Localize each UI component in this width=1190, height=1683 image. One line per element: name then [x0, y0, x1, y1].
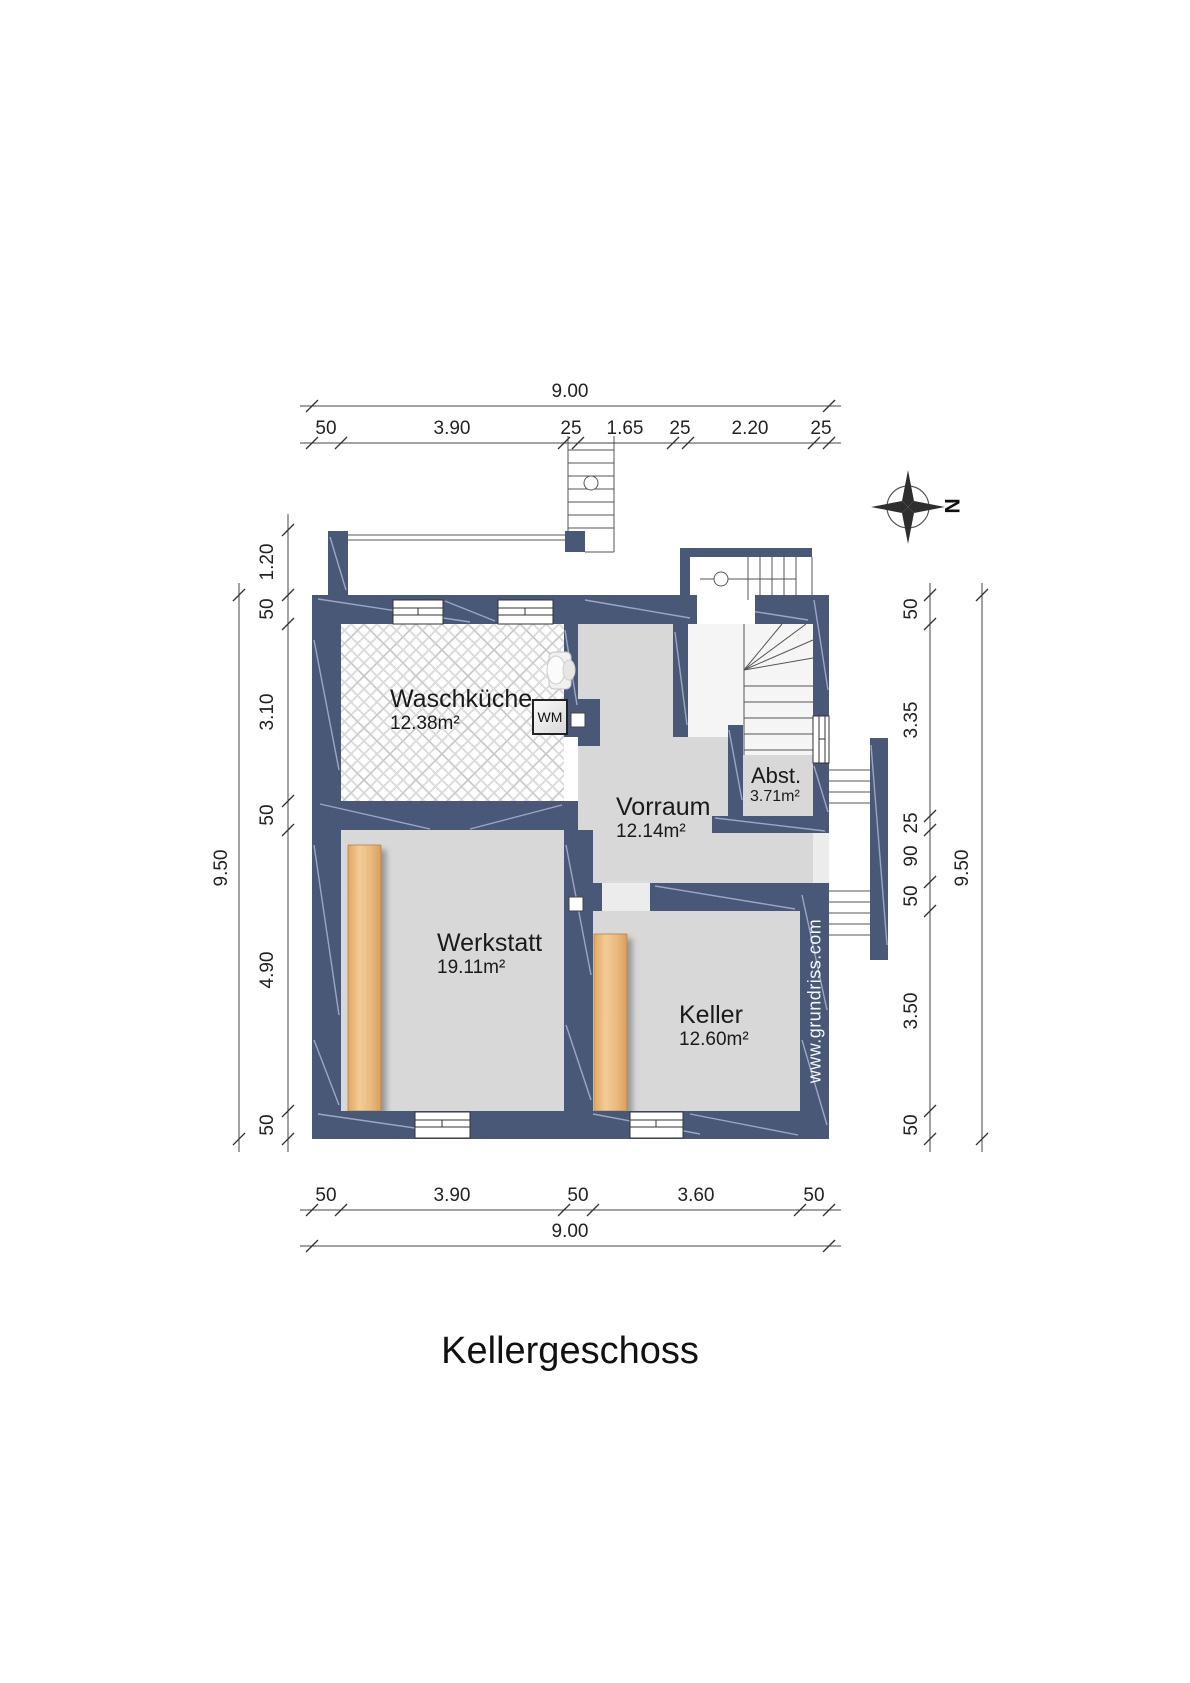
dim-left-chain-4: 4.90 [257, 952, 279, 989]
dim-top-chain-0: 50 [315, 418, 336, 440]
door-panel-werkstatt [569, 897, 583, 911]
wall-west [312, 595, 341, 1139]
dim-left-total: 9.50 [211, 850, 233, 887]
washing-machine-icon: WM [532, 699, 568, 735]
entry-stair-top-right [700, 557, 812, 600]
wall-werkstatt-keller [564, 830, 593, 1111]
room-area-keller: 12.60m² [679, 1029, 749, 1051]
dim-bottom-chain-3: 3.60 [678, 1185, 715, 1207]
dim-bottom-chain-0: 50 [315, 1185, 336, 1207]
dim-top-chain-3: 1.65 [607, 418, 644, 440]
compass-north-label: N [939, 498, 963, 513]
floorplan-page: Waschküche 12.38m² Vorraum 12.14m² Abst.… [0, 0, 1190, 1683]
floorplan-drawing [0, 0, 1190, 1683]
room-label-keller: Keller [679, 1001, 743, 1030]
watermark: www.grundriss.com [805, 894, 827, 1109]
sink-icon [547, 652, 575, 689]
porch-pier [680, 548, 690, 600]
dim-top-chain-6: 25 [810, 418, 831, 440]
werkstatt-workbench [348, 845, 381, 1111]
room-label-werkstatt: Werkstatt [437, 929, 542, 958]
dim-bottom-chain-1: 3.90 [434, 1185, 471, 1207]
vorraum-floor [578, 624, 688, 883]
dim-right-total: 9.50 [952, 850, 974, 887]
door-panel-waschkueche [571, 713, 585, 727]
dim-top-chain-4: 25 [669, 418, 690, 440]
room-area-vorraum: 12.14m² [616, 821, 686, 843]
dim-top-total: 9.00 [552, 381, 589, 403]
dim-left-chain-0: 1.20 [257, 544, 279, 581]
compass-icon [871, 470, 945, 544]
keller-shelf [594, 934, 627, 1111]
dim-left-chain-3: 50 [257, 804, 279, 825]
room-label-abstellraum: Abst. [751, 763, 801, 789]
dim-right-chain-6: 50 [901, 1114, 923, 1135]
terrace-edge [348, 535, 565, 540]
terrace-pier-right [565, 531, 585, 552]
wall-waschkueche-werkstatt [312, 801, 578, 830]
room-area-waschkueche: 12.38m² [390, 713, 460, 735]
keller-door-opening [602, 883, 650, 911]
room-label-waschkueche: Waschküche [390, 685, 532, 714]
dim-top-chain-2: 25 [560, 418, 581, 440]
room-area-werkstatt: 19.11m² [437, 957, 505, 979]
dim-top-chain-5: 2.20 [732, 418, 769, 440]
porch-wall [680, 548, 812, 557]
waschkueche-door-opening [564, 737, 578, 801]
dim-right-chain-2: 25 [901, 812, 923, 833]
dim-right-chain-1: 3.35 [901, 702, 923, 739]
dim-top-chain-1: 3.90 [434, 418, 471, 440]
exterior-stair-right [829, 770, 870, 935]
dim-right-chain-0: 50 [901, 598, 923, 619]
dim-bottom-chain-4: 50 [803, 1185, 824, 1207]
room-label-vorraum: Vorraum [616, 793, 710, 822]
room-area-abstellraum: 3.71m² [750, 788, 800, 806]
dim-right-chain-3: 90 [901, 845, 923, 866]
stair-hall-floor [688, 624, 813, 755]
dim-left-chain-5: 50 [257, 1114, 279, 1135]
entry-door-opening [697, 595, 755, 624]
dim-left-chain-1: 50 [257, 598, 279, 619]
exterior-door-opening [813, 833, 829, 883]
dim-bottom-chain-2: 50 [567, 1185, 588, 1207]
dim-left-chain-2: 3.10 [257, 694, 279, 731]
dim-right-chain-5: 3.50 [901, 993, 923, 1030]
dim-right-chain-4: 50 [901, 885, 923, 906]
page-title: Kellergeschoss [441, 1330, 699, 1373]
dim-bottom-total: 9.00 [552, 1221, 589, 1243]
